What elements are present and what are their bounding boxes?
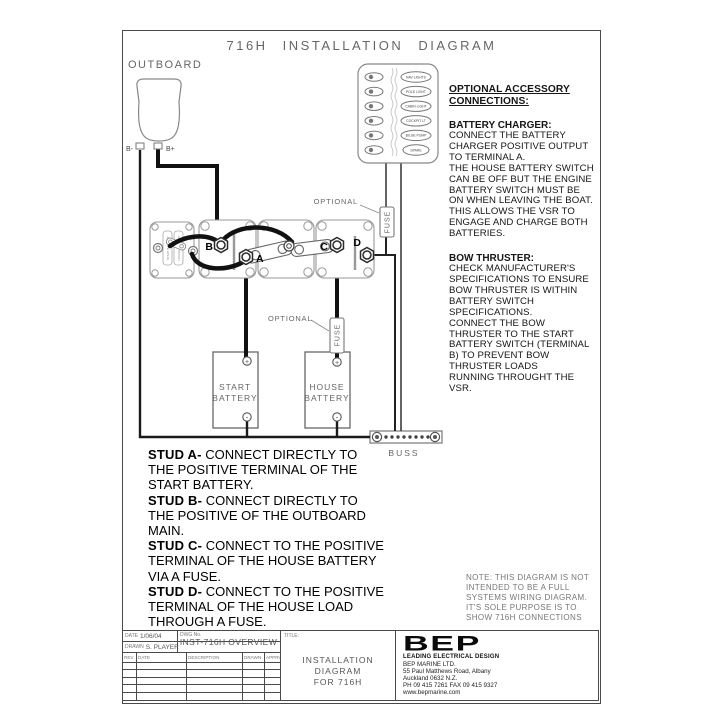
switch-cluster: START BATTERY HOUSE BATTERY (150, 220, 374, 278)
stud-b-instruction: STUD B- CONNECT DIRECTLY TO THE POSITIVE… (148, 493, 416, 539)
stud-a-label: A (256, 253, 264, 265)
stud-d (361, 248, 374, 263)
fuse-house: FUSE OPTIONAL (268, 314, 344, 353)
date-cell: DATE 1/06/04 (123, 631, 178, 641)
toggle-switch (365, 131, 383, 140)
house-battery-pos-terminal: + (335, 360, 339, 367)
dwg-number: INST-716H OVERVIEW (178, 637, 279, 647)
revision-headers: REV DATE DESCRIPTION DRAWN APPRVD (123, 653, 280, 663)
toggle-switch (365, 117, 383, 126)
stud-c (331, 238, 344, 253)
toggle-switch (365, 73, 383, 82)
drawn-cell: DRAWN S. PLAYER (123, 642, 178, 652)
panel-wires (371, 163, 401, 431)
house-battery-label-2: BATTERY (304, 393, 349, 403)
stud-a-instruction: STUD A- CONNECT DIRECTLY TO THE POSITIVE… (148, 447, 416, 493)
outboard-pos-terminal (154, 143, 162, 149)
fuse-house-label: FUSE (335, 324, 342, 347)
stud-c-instruction: STUD C- CONNECT TO THE POSITIVE TERMINAL… (148, 538, 416, 584)
outboard-pos-label: B+ (166, 146, 175, 153)
title-label: TITLE: (284, 633, 299, 639)
company-cell: BEP LEADING ELECTRICAL DESIGN BEP MARINE… (396, 631, 598, 700)
switch-label-spare: SPARE (410, 148, 422, 152)
drawing-title: INSTALLATION DIAGRAM FOR 716H (281, 655, 395, 688)
outboard: OUTBOARD B- B+ (126, 59, 202, 153)
toggle-switch (365, 146, 383, 155)
toggle-switch (365, 87, 383, 96)
outboard-label: OUTBOARD (128, 59, 202, 71)
revision-empty-rows (123, 663, 280, 700)
battery-charger-body: CONNECT THE BATTERY CHARGER POSITIVE OUT… (449, 131, 609, 240)
stud-d-label: D (353, 237, 361, 249)
outboard-neg-label: B- (126, 146, 134, 153)
bow-thruster-body: CHECK MANUFACTURER'S SPECIFICATIONS TO E… (449, 264, 609, 395)
toggle-switch (365, 102, 383, 111)
date-value: 1/06/04 (140, 633, 162, 640)
outboard-motor-shape (137, 79, 181, 141)
switch-label-pole-light: POLE LIGHT (406, 90, 426, 94)
stud-b-label: B (205, 241, 213, 253)
dwg-cell: DWG No. INST-716H OVERVIEW (178, 631, 279, 650)
accessory-switch-panel: NAV LIGHTS POLE LIGHT CABIN LIGHT COCKPI… (358, 64, 438, 163)
switch-label-cabin-light: CABIN LIGHT (405, 105, 426, 109)
drawn-value: S. PLAYER (146, 644, 179, 651)
switch-label-nav-lights: NAV LIGHTS (406, 75, 427, 79)
wire-stud-d-run (371, 255, 395, 431)
accessory-heading: OPTIONAL ACCESSORY CONNECTIONS: (449, 84, 609, 107)
fuse-house-optional-label: OPTIONAL (268, 314, 312, 323)
fuse-top-label: FUSE (385, 211, 392, 234)
start-battery-neg-terminal: - (246, 413, 249, 422)
stud-instructions: STUD A- CONNECT DIRECTLY TO THE POSITIVE… (148, 447, 416, 629)
stud-c-label: C (320, 241, 328, 253)
vsr-stud-left (154, 244, 163, 253)
start-battery-pos-terminal: + (245, 359, 249, 366)
house-battery: HOUSE BATTERY (304, 352, 350, 428)
company-address: BEP MARINE LTD. 55 Paul Matthews Road, A… (403, 661, 598, 696)
house-battery-neg-terminal: - (336, 413, 339, 422)
switch-label-cockpit-lt: COCKPIT LT (406, 119, 426, 123)
disclaimer-note: NOTE: THIS DIAGRAM IS NOT INTENDED TO BE… (466, 573, 606, 623)
fuse-top-optional-label: OPTIONAL (314, 197, 358, 206)
switch-label-bilge-pump: BILGE PUMP (406, 134, 427, 138)
stud-a (240, 250, 253, 265)
house-battery-label-1: HOUSE (309, 382, 344, 392)
start-battery-label-2: BATTERY (212, 393, 257, 403)
mid-stud (284, 241, 294, 251)
accessory-notes: OPTIONAL ACCESSORY CONNECTIONS: BATTERY … (449, 84, 609, 395)
outboard-neg-terminal (136, 143, 144, 149)
stud-d-instruction: STUD D- CONNECT TO THE POSITIVE TERMINAL… (148, 584, 416, 630)
stud-b (215, 238, 228, 253)
start-battery-label-1: START (219, 382, 251, 392)
drawing-sheet: 716H INSTALLATION DIAGRAM START BATTERY … (0, 0, 720, 720)
bep-logo: BEP (403, 634, 598, 651)
title-cell: TITLE: INSTALLATION DIAGRAM FOR 716H (281, 631, 396, 700)
